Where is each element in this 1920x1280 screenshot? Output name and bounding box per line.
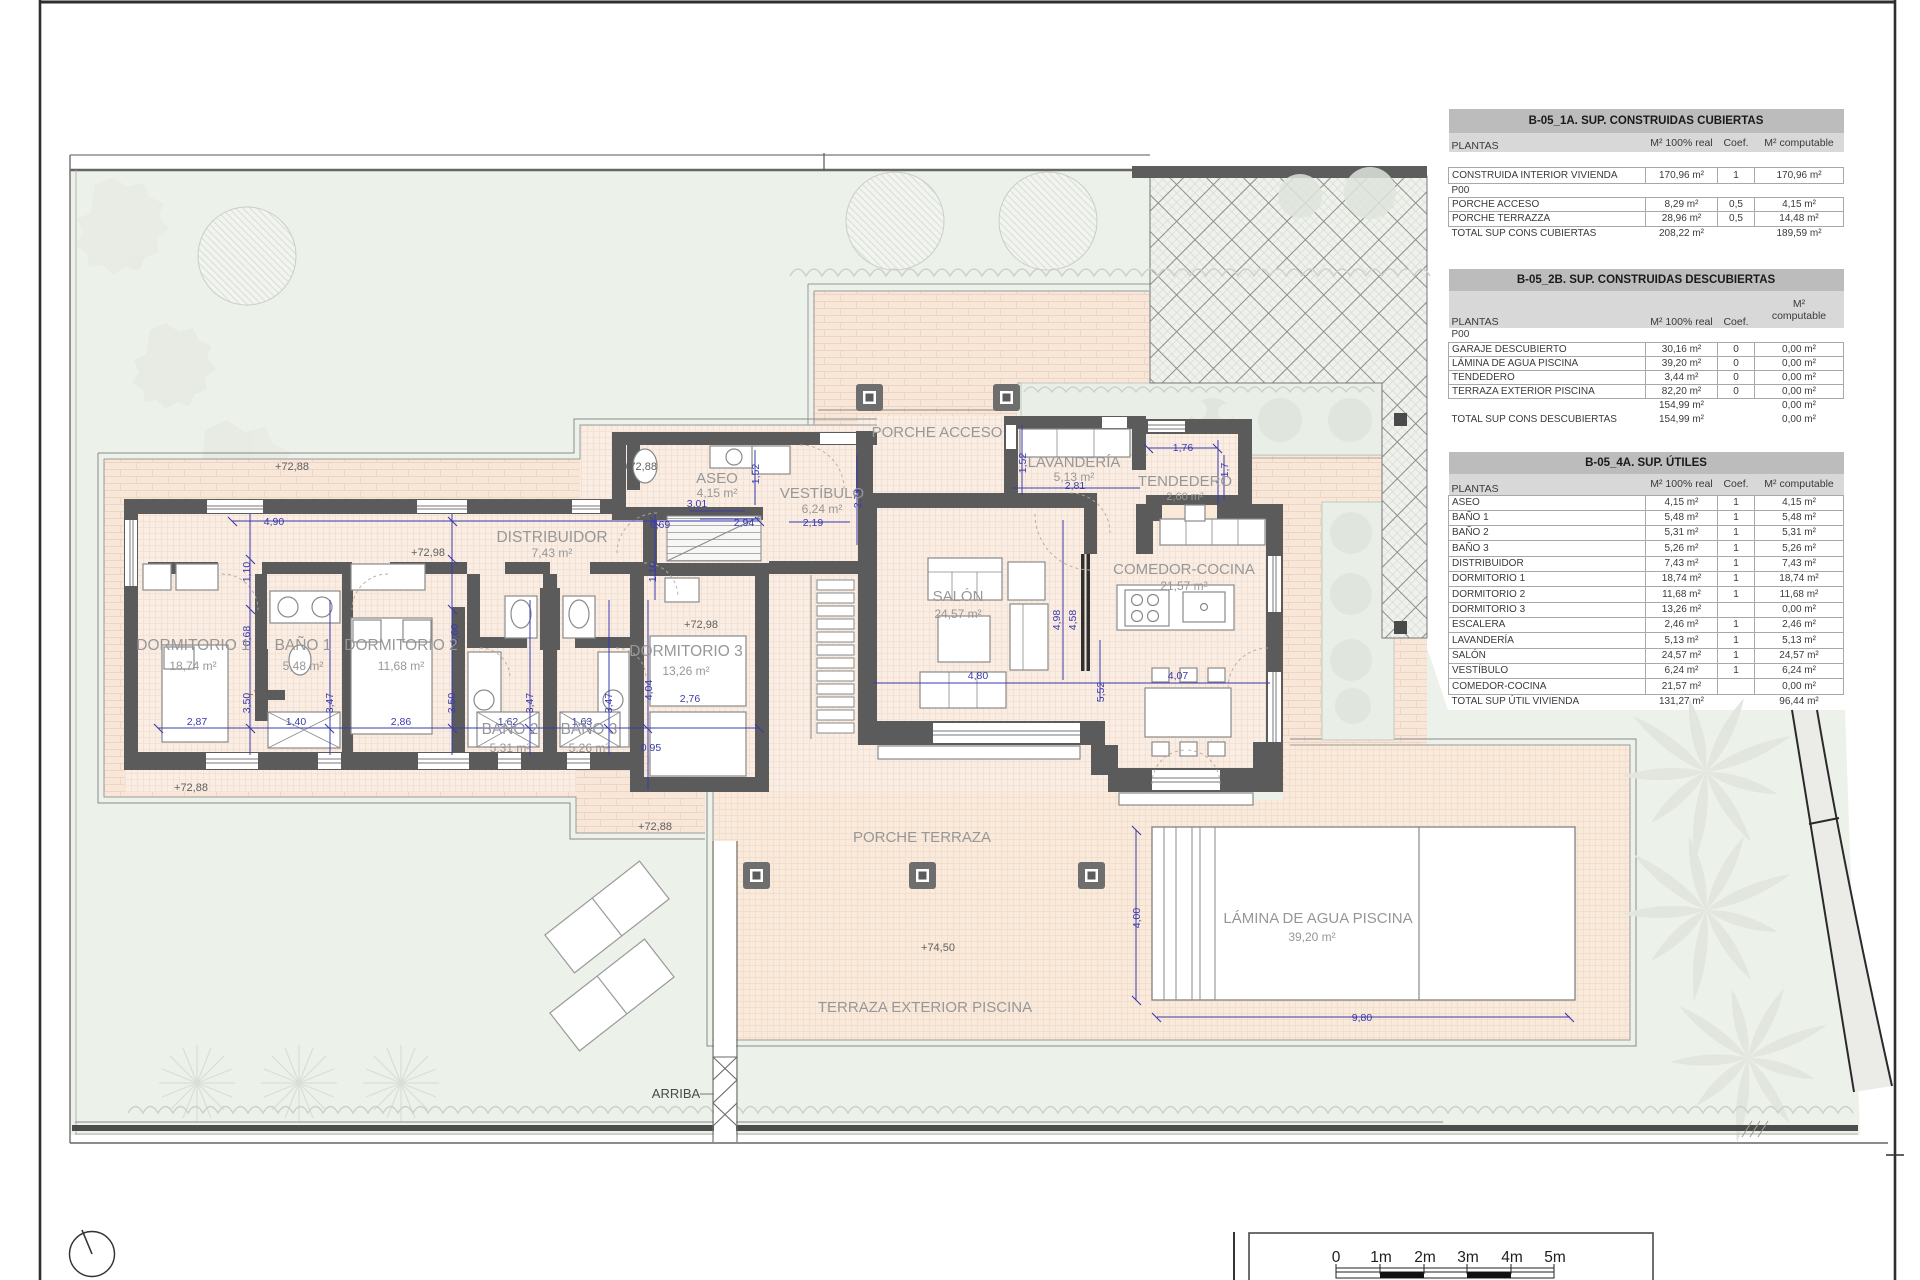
svg-text:24,57 m²: 24,57 m² — [934, 607, 981, 621]
svg-text:PORCHE ACCESO: PORCHE ACCESO — [872, 424, 1003, 441]
svg-text:6,24 m²: 6,24 m² — [802, 502, 843, 516]
svg-text:DISTRIBUIDOR: DISTRIBUIDOR — [496, 529, 607, 546]
svg-text:DORMITORIO 3: DORMITORIO 3 — [629, 643, 742, 660]
svg-text:4m: 4m — [1501, 1249, 1523, 1266]
svg-text:7,43 m²: 7,43 m² — [532, 546, 573, 560]
svg-text:5,48 m²: 5,48 m² — [283, 659, 324, 673]
svg-text:1m: 1m — [1370, 1249, 1392, 1266]
svg-text:3,47: 3,47 — [524, 693, 536, 714]
svg-text:+72,88: +72,88 — [623, 461, 657, 473]
svg-text:BAÑO 2: BAÑO 2 — [482, 721, 539, 738]
svg-text:1,52: 1,52 — [750, 464, 762, 485]
svg-text:5m: 5m — [1544, 1249, 1566, 1266]
svg-text:18,74 m²: 18,74 m² — [169, 659, 216, 673]
svg-text:1,10: 1,10 — [647, 562, 659, 583]
svg-text:TERRAZA EXTERIOR PISCINA: TERRAZA EXTERIOR PISCINA — [818, 999, 1032, 1016]
svg-text:0: 0 — [1332, 1249, 1341, 1266]
svg-text:2,19: 2,19 — [803, 517, 824, 529]
svg-text:5,31 m²: 5,31 m² — [490, 741, 531, 755]
svg-text:DORMITORIO 1: DORMITORIO 1 — [136, 637, 249, 654]
svg-text:4,15 m²: 4,15 m² — [697, 486, 738, 500]
svg-text:+74,50: +74,50 — [921, 942, 955, 954]
svg-text:39,20 m²: 39,20 m² — [1288, 930, 1335, 944]
svg-text:LÁMINA DE AGUA PISCINA: LÁMINA DE AGUA PISCINA — [1223, 910, 1412, 927]
svg-text:4,07: 4,07 — [1168, 670, 1189, 682]
svg-text:+72,88: +72,88 — [174, 782, 208, 794]
svg-text:DORMITORIO 2: DORMITORIO 2 — [344, 637, 457, 654]
svg-text:3,47: 3,47 — [603, 693, 615, 714]
svg-text:COMEDOR-COCINA: COMEDOR-COCINA — [1113, 561, 1255, 578]
svg-text:BAÑO 1: BAÑO 1 — [275, 637, 332, 654]
svg-text:4,98: 4,98 — [1051, 610, 1063, 631]
svg-text:11,68 m²: 11,68 m² — [378, 659, 424, 673]
svg-text:3,50: 3,50 — [446, 693, 458, 714]
svg-text:2m: 2m — [1414, 1249, 1436, 1266]
svg-text:4,04: 4,04 — [643, 680, 655, 701]
svg-text:ARRIBA: ARRIBA — [652, 1086, 701, 1101]
svg-text:+72,98: +72,98 — [411, 547, 445, 559]
svg-text:LAVANDERÍA: LAVANDERÍA — [1028, 454, 1121, 471]
svg-text:21,57 m²: 21,57 m² — [1160, 579, 1207, 593]
svg-text:9,80: 9,80 — [1352, 1012, 1373, 1024]
svg-text:4,90: 4,90 — [264, 516, 285, 528]
svg-text:+72,88: +72,88 — [638, 821, 672, 833]
svg-text:1,40: 1,40 — [286, 716, 307, 728]
svg-text:1,76: 1,76 — [1173, 442, 1194, 454]
svg-text:5,52: 5,52 — [1095, 682, 1107, 703]
svg-text:+72,98: +72,98 — [684, 619, 718, 631]
svg-text:13,26 m²: 13,26 m² — [662, 664, 709, 678]
svg-text:ASEO: ASEO — [696, 470, 738, 487]
svg-text:2,94: 2,94 — [734, 517, 755, 529]
svg-text:6,69: 6,69 — [650, 519, 671, 531]
svg-text:2,76: 2,76 — [680, 693, 701, 705]
svg-text:3m: 3m — [1457, 1249, 1479, 1266]
svg-text:4,80: 4,80 — [968, 670, 989, 682]
svg-text:SALÓN: SALÓN — [933, 588, 984, 605]
svg-text:BAÑO 3: BAÑO 3 — [561, 721, 618, 738]
svg-text:3,47: 3,47 — [324, 693, 336, 714]
svg-text:TENDEDERO: TENDEDERO — [1138, 473, 1232, 490]
svg-text:+72,88: +72,88 — [275, 461, 309, 473]
svg-text:2,86: 2,86 — [391, 716, 412, 728]
svg-text:4,58: 4,58 — [1067, 610, 1079, 631]
svg-text:2,60 m²: 2,60 m² — [1166, 491, 1204, 503]
svg-text:0,95: 0,95 — [641, 742, 662, 754]
svg-text:5,26 m²: 5,26 m² — [569, 741, 610, 755]
svg-text:PORCHE TERRAZA: PORCHE TERRAZA — [853, 829, 991, 846]
svg-text:+72,98: +72,98 — [247, 689, 281, 701]
svg-text:1,10: 1,10 — [241, 562, 253, 583]
svg-text:5,13 m²: 5,13 m² — [1054, 470, 1095, 484]
svg-text:VESTÍBULO: VESTÍBULO — [780, 485, 864, 502]
svg-text:2,87: 2,87 — [187, 716, 208, 728]
svg-text:4,00: 4,00 — [1131, 908, 1143, 929]
